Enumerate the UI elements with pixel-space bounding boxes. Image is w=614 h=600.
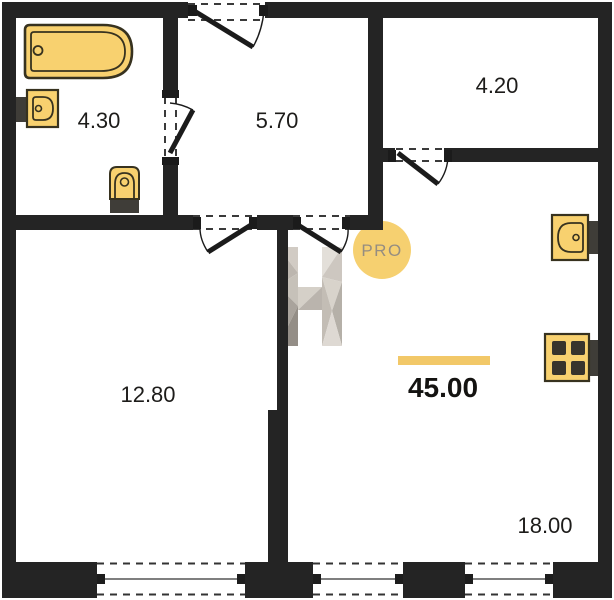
floor-plan: PRO (0, 0, 614, 600)
bathtub-icon (25, 25, 132, 78)
bathroom-door (170, 103, 193, 153)
window-bottom-left (97, 564, 245, 595)
stove-icon (545, 334, 598, 381)
room-area-label-bottom-right-room: 18.00 (517, 513, 572, 539)
toilet-icon (110, 167, 139, 213)
room-area-label-hallway: 5.70 (256, 108, 299, 134)
kitchen-sink-icon (552, 215, 598, 260)
room-area-label-bathroom: 4.30 (78, 108, 121, 134)
windows (97, 564, 553, 595)
entrance-door (191, 9, 264, 47)
window-bottom-middle (313, 564, 403, 595)
pro-badge-label: PRO (361, 241, 402, 260)
door-jambs (162, 5, 452, 229)
top-right-room-door (398, 153, 448, 184)
door-openings (165, 4, 444, 229)
total-area-label: 45.00 (408, 372, 478, 404)
room-area-label-top-right-room: 4.20 (476, 73, 519, 99)
room-area-label-bottom-left-room: 12.80 (120, 382, 175, 408)
total-area-underline (398, 356, 490, 365)
window-bottom-right (465, 564, 553, 595)
floor-plan-drawing: PRO (0, 0, 614, 600)
washbasin-icon (16, 90, 58, 127)
